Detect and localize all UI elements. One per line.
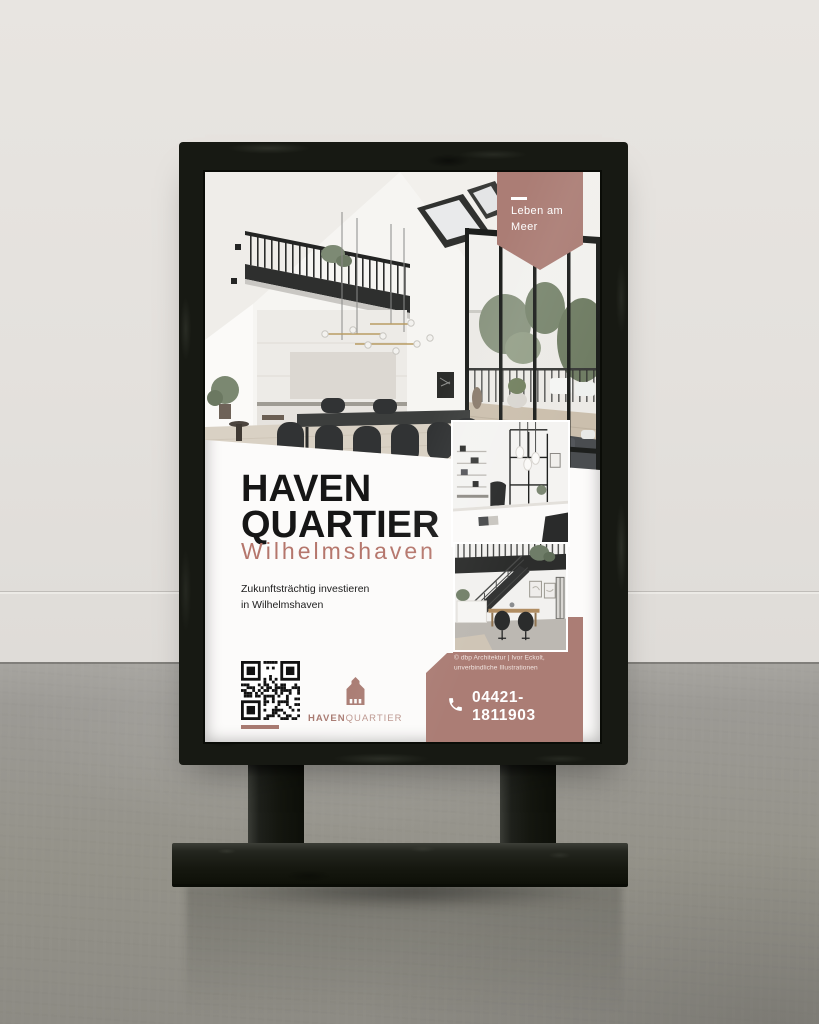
logo-wordmark: HAVENQUARTIER: [308, 713, 402, 724]
poster-title: HAVEN QUARTIER: [241, 471, 439, 543]
stand-floor-reflection: [186, 886, 622, 1024]
stand-left-column: [248, 763, 304, 845]
photo-credit: © dbp Architektur | Ivor Eckolt, unverbi…: [454, 653, 545, 673]
poster-tagline: Zukunftsträchtig investieren in Wilhelms…: [241, 581, 369, 614]
poster: Leben am Meer HAVEN QUARTIER Wilhelmshav…: [205, 172, 600, 742]
phone-icon: [447, 696, 464, 718]
havenquartier-logo: HAVENQUARTIER: [308, 677, 402, 724]
qr-code: [241, 661, 300, 720]
staircase-interior-photo: [453, 542, 568, 652]
poster-subtitle: Wilhelmshaven: [241, 538, 436, 565]
stand-base: [172, 843, 628, 887]
badge-dash: [511, 197, 527, 200]
stand-right-column: [500, 763, 556, 845]
qr-underline-bar: [241, 725, 279, 729]
phone-row: 04421-1811903: [447, 689, 583, 725]
house-icon: [343, 692, 368, 709]
showroom-scene: Leben am Meer HAVEN QUARTIER Wilhelmshav…: [0, 0, 819, 1024]
poster-stand-frame: Leben am Meer HAVEN QUARTIER Wilhelmshav…: [179, 142, 628, 765]
office-interior-photo: [451, 420, 570, 547]
phone-number: 04421-1811903: [472, 689, 583, 725]
badge-text: Leben am Meer: [511, 204, 563, 236]
